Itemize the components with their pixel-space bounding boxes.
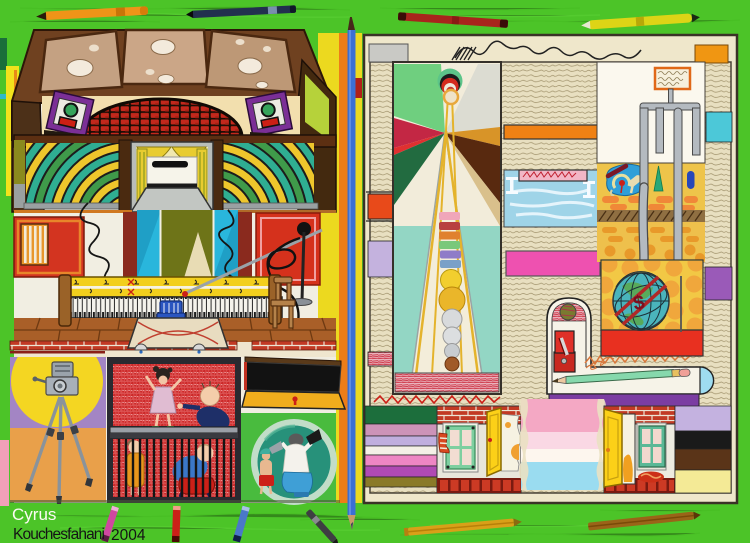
svg-text:Kouchesfahani: Kouchesfahani	[13, 526, 105, 543]
svg-text:Cyrus: Cyrus	[12, 505, 56, 524]
svg-text:2004: 2004	[111, 527, 146, 543]
